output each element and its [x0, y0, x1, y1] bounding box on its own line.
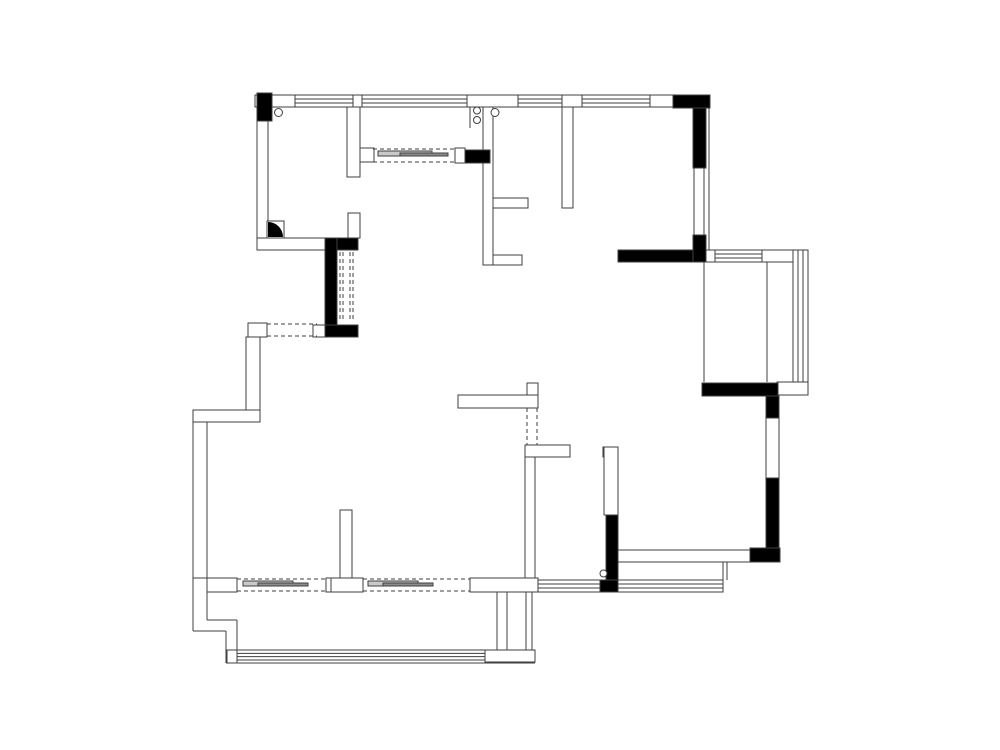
wall-band: [470, 578, 538, 592]
wall-band: [485, 650, 535, 662]
wall-band: [330, 578, 363, 592]
wall-band: [493, 198, 528, 208]
wall-band: [483, 107, 493, 265]
black-wall: [693, 108, 706, 168]
wall-band: [527, 383, 538, 395]
window-band-horizontal: [295, 95, 353, 107]
black-wall: [325, 238, 337, 337]
wall-band: [326, 578, 331, 592]
black-wall: [618, 250, 693, 262]
wall-band: [193, 422, 207, 578]
pipe-circle: [474, 107, 481, 114]
window-band-horizontal: [362, 95, 467, 107]
black-wall: [750, 548, 780, 562]
black-wall: [702, 383, 778, 396]
window-band-horizontal: [582, 95, 650, 107]
wall-band: [604, 447, 618, 515]
sliding-door-panel: [383, 583, 433, 586]
window-band-horizontal: [518, 95, 562, 107]
wall-band: [257, 238, 328, 250]
wall-band: [766, 418, 779, 478]
black-wall: [600, 580, 618, 592]
wall-band: [777, 382, 808, 395]
wall-band: [458, 395, 538, 408]
wall-band: [227, 650, 237, 663]
wall-band: [348, 213, 360, 238]
wall-band: [497, 592, 507, 650]
wall-band: [207, 578, 237, 592]
pipe-circle: [600, 570, 607, 577]
wall-band: [360, 148, 374, 162]
wall-band: [618, 550, 750, 562]
wall-band: [493, 255, 522, 265]
black-wall: [257, 93, 272, 121]
wall-band: [246, 337, 260, 411]
pipe-circle: [491, 109, 499, 117]
wall-band: [694, 168, 704, 235]
black-wall: [606, 515, 618, 582]
wall-band: [347, 107, 360, 177]
pipe-circle: [474, 117, 481, 124]
window-band-vertical: [793, 250, 808, 382]
black-wall: [465, 150, 490, 163]
window-band-horizontal: [715, 250, 762, 262]
wall-band: [455, 148, 465, 163]
wall-band: [257, 107, 268, 248]
black-wall: [693, 235, 706, 262]
floor-plan-svg: [0, 0, 1000, 750]
wall-band: [562, 107, 573, 208]
black-wall: [673, 95, 710, 108]
sliding-door-panel: [258, 583, 308, 586]
black-wall: [766, 396, 779, 418]
floor-plan-canvas: [0, 0, 1000, 750]
black-wall: [325, 325, 358, 337]
wall-band: [248, 323, 267, 337]
pipe-circle: [275, 109, 283, 117]
wall-band: [525, 445, 570, 457]
window-band-horizontal: [237, 650, 485, 660]
sliding-door-panel: [400, 153, 448, 156]
wall-band: [313, 325, 325, 337]
wall-band: [525, 457, 535, 578]
wall-band: [340, 510, 352, 578]
window-band-horizontal: [538, 580, 723, 592]
wall-band: [526, 592, 532, 650]
wall-band: [193, 410, 260, 422]
